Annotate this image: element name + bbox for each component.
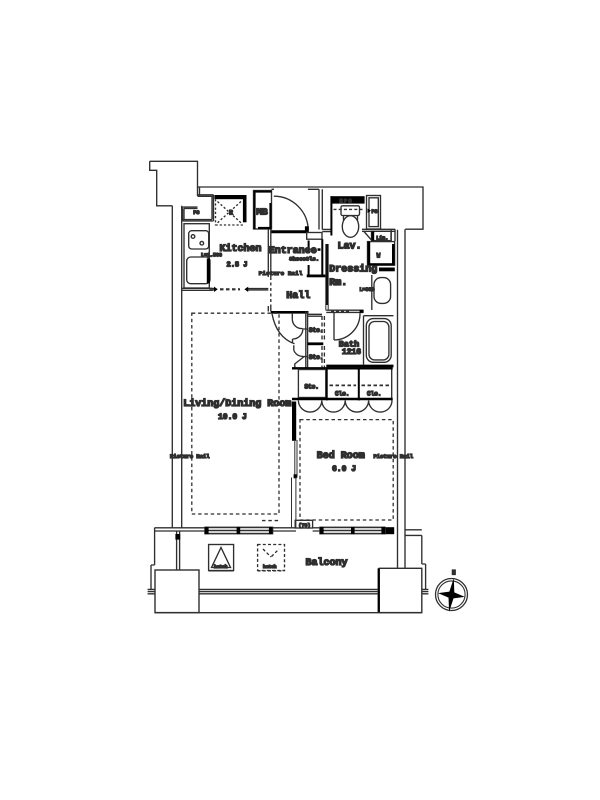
svg-text:MB: MB (256, 207, 268, 218)
svg-text:1216: 1216 (342, 348, 361, 357)
svg-text:R: R (229, 209, 233, 216)
svg-text:Balcony: Balcony (306, 557, 348, 569)
svg-text:EPS: EPS (340, 199, 354, 205)
svg-text:(79): (79) (299, 523, 311, 529)
svg-text:Rm.: Rm. (329, 278, 347, 289)
svg-text:Clo.: Clo. (367, 391, 381, 398)
svg-text:6.0 J: 6.0 J (332, 465, 356, 474)
svg-text:2.8 J: 2.8 J (227, 261, 248, 269)
svg-text:Clo.: Clo. (335, 391, 349, 398)
svg-text:PS: PS (193, 210, 199, 216)
svg-text:Living/Dining Room: Living/Dining Room (183, 398, 291, 410)
svg-text:Kitchen: Kitchen (220, 243, 262, 255)
svg-text:hatch: hatch (263, 564, 277, 570)
svg-text:L=800: L=800 (360, 287, 375, 293)
svg-text:Picture Rail: Picture Rail (170, 453, 210, 460)
svg-text:PS: PS (372, 209, 378, 215)
svg-text:Hall: Hall (286, 290, 310, 302)
svg-text:Lav.: Lav. (338, 242, 362, 253)
svg-text:ShoesCls.: ShoesCls. (289, 256, 319, 263)
svg-text:Bed Room: Bed Room (317, 450, 365, 462)
svg-text:hatch: hatch (214, 564, 228, 570)
svg-text:Sto.: Sto. (309, 327, 323, 334)
svg-text:W: W (377, 253, 381, 260)
svg-text:Sto.: Sto. (309, 354, 323, 361)
svg-text:Picture Rail: Picture Rail (259, 270, 303, 277)
svg-text:L=1.500: L=1.500 (201, 253, 222, 259)
svg-text:N: N (452, 570, 456, 577)
svg-text:10.0 J: 10.0 J (218, 413, 247, 422)
svg-text:Lin.: Lin. (376, 236, 388, 242)
svg-text:Sto.: Sto. (305, 383, 319, 390)
svg-text:Dressing: Dressing (329, 264, 377, 276)
